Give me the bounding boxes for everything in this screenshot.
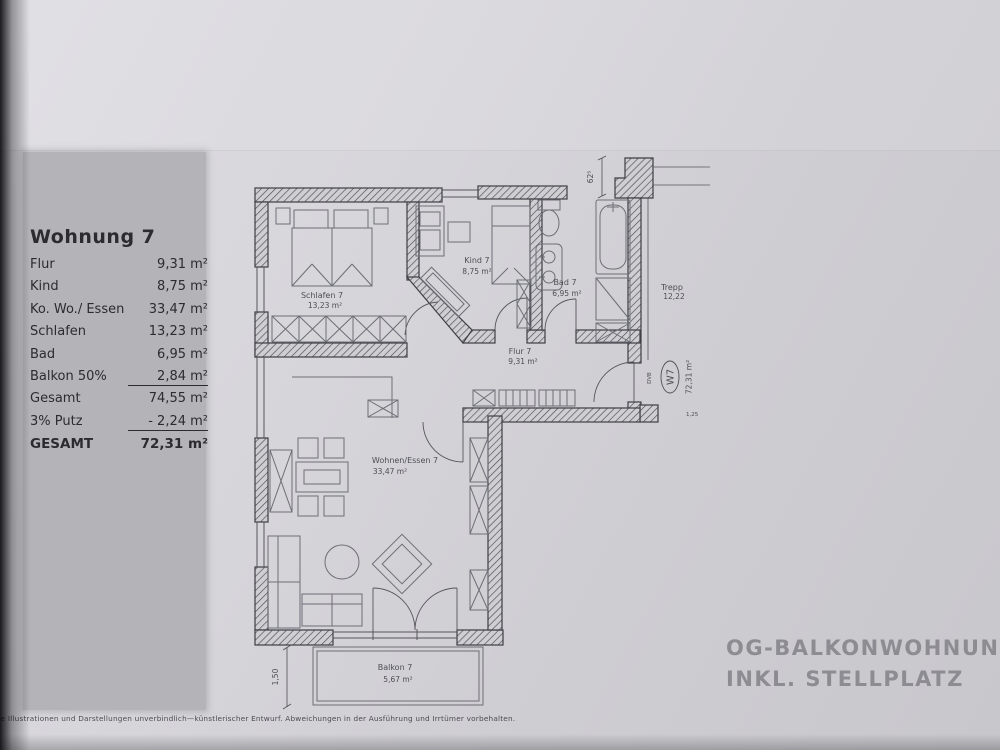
room-label: Bad (30, 347, 128, 362)
room-label: Flur (30, 257, 128, 272)
balcony-door-right-arc (415, 588, 457, 630)
entrance-door-arc (594, 362, 634, 402)
stairs-area: 12,22 (663, 292, 685, 301)
apartment-title: Wohnung 7 (30, 226, 208, 248)
unit-badge: W7 72,31 m² DVB (647, 360, 694, 394)
sofa (268, 536, 362, 628)
room-label: GESAMT (30, 436, 128, 452)
hall-sideboard (473, 390, 575, 406)
dim-entry-step: 1,25 (686, 412, 699, 418)
room-area: 9,31 m² (128, 257, 208, 272)
walls (255, 158, 658, 645)
room-label: Schlafen (30, 324, 128, 339)
room-label: Kind (30, 279, 128, 294)
room-area: 8,75 m² (462, 267, 491, 276)
room-area: 6,95 m² (128, 347, 208, 362)
room-area: 33,47 m² (373, 467, 407, 476)
room-name: Bad 7 (553, 278, 576, 287)
disclaimer-text: Alle Illustrationen und Darstellungen un… (0, 714, 515, 723)
room-area: 74,55 m² (128, 391, 208, 406)
room-area: 9,31 m² (508, 357, 537, 366)
room-area: 8,75 m² (128, 279, 208, 294)
door-code: DVB (647, 372, 653, 384)
photographed-floorplan-page: Wohnung 7 Flur 9,31 m² Kind 8,75 m² Ko. … (0, 0, 1000, 750)
room-area: 5,67 m² (383, 675, 412, 684)
stairs-label: Trepp (660, 283, 683, 292)
double-bed (276, 208, 388, 286)
marketing-note-line2: INKL. STELLPLATZ (726, 664, 1000, 695)
room-area: 2,84 m² (128, 369, 208, 386)
marketing-note-line1: OG-BALKONWOHNUNG (726, 633, 1000, 664)
room-area: 13,23 m² (308, 301, 342, 310)
room-name: Flur 7 (509, 347, 532, 356)
room-name: Kind 7 (464, 256, 489, 265)
room-name: Schlafen 7 (301, 291, 343, 300)
balcony-door-left-arc (373, 588, 415, 630)
armchair (372, 534, 431, 593)
unit-code: W7 (666, 369, 677, 385)
kitchen-counter (292, 377, 398, 418)
area-summary-table: Wohnung 7 Flur 9,31 m² Kind 8,75 m² Ko. … (30, 226, 208, 459)
table-row: Flur 9,31 m² (30, 257, 208, 279)
furniture (268, 200, 630, 705)
table-row: Balkon 50% 2,84 m² (30, 369, 208, 391)
bad-door-arc (545, 299, 576, 330)
room-label: Ko. Wo./ Essen (30, 302, 128, 317)
room-area: 72,31 m² (128, 436, 208, 452)
kind-door-arc (495, 298, 527, 330)
tall-cabinet (270, 450, 292, 512)
photo-bottom-shadow (0, 734, 1000, 750)
bathtub (596, 200, 630, 274)
room-area: - 2,24 m² (128, 414, 208, 431)
photo-left-shadow (0, 0, 30, 750)
wall-shelves (470, 438, 488, 610)
unit-total-area: 72,31 m² (685, 360, 694, 394)
room-area: 33,47 m² (128, 302, 208, 317)
floorplan-drawing: 62⁵ 1,50 1,25 W7 72,31 m² DVB Schlafen 7… (250, 150, 710, 715)
table-row: Schlafen 13,23 m² (30, 324, 208, 346)
table-row: Ko. Wo./ Essen 33,47 m² (30, 302, 208, 324)
table-row-total: GESAMT 72,31 m² (30, 436, 208, 458)
dim-balcony-depth: 1,50 (271, 668, 280, 685)
room-name: Wohnen/Essen 7 (372, 456, 438, 465)
room-name: Balkon 7 (378, 663, 413, 672)
table-row: Kind 8,75 m² (30, 279, 208, 301)
paper-lighting-seam (0, 0, 1000, 151)
dining-set (296, 438, 348, 516)
shower (596, 278, 630, 320)
coffee-table (325, 545, 359, 579)
windows (257, 167, 710, 640)
marketing-note: OG-BALKONWOHNUNG INKL. STELLPLATZ (726, 633, 1000, 695)
room-area: 13,23 m² (128, 324, 208, 339)
room-area: 6,95 m² (552, 289, 581, 298)
room-label: Balkon 50% (30, 369, 128, 384)
kids-desk (416, 206, 470, 256)
table-row: 3% Putz - 2,24 m² (30, 414, 208, 436)
room-label: 3% Putz (30, 414, 128, 429)
dim-top-wall: 62⁵ (586, 171, 595, 184)
table-row: Bad 6,95 m² (30, 347, 208, 369)
table-row: Gesamt 74,55 m² (30, 391, 208, 413)
room-label: Gesamt (30, 391, 128, 406)
kids-bed (492, 206, 530, 284)
wardrobe (272, 316, 406, 342)
